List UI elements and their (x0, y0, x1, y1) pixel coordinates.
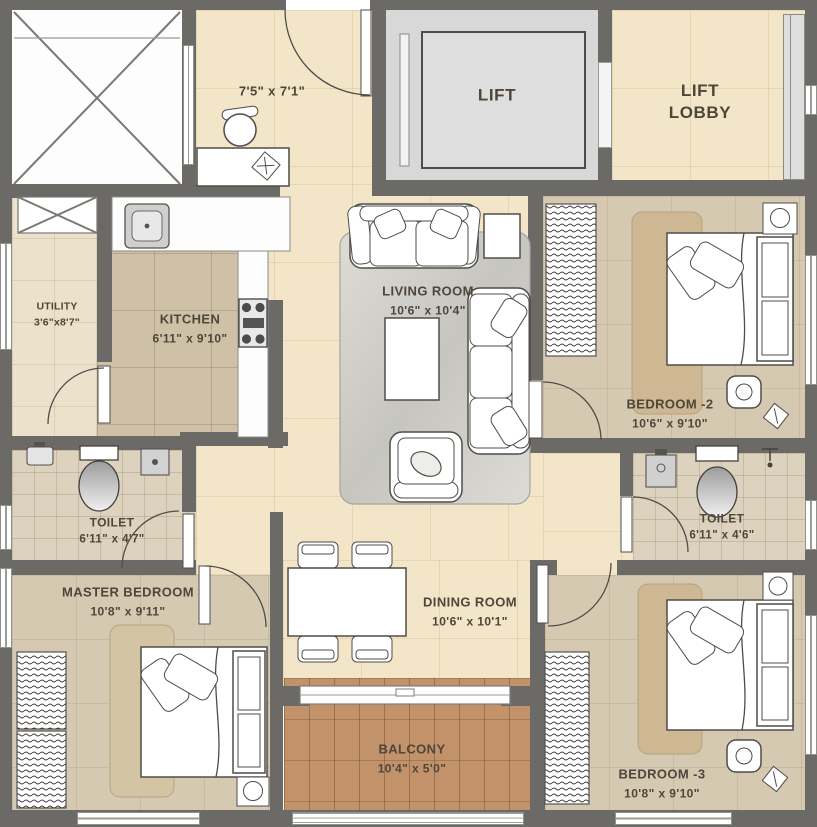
wc-toilet1-icon (79, 446, 119, 511)
wardrobe-bedroom3 (545, 652, 589, 804)
stool-bedroom2 (727, 376, 761, 408)
bed-bedroom2 (632, 212, 793, 414)
label-toilet2: TOILET 6'11" x 4'6" (689, 509, 754, 544)
floor-plan: 7'5" x 7'1" LIFT LIFT LOBBY UTILITY 3'6"… (0, 0, 817, 827)
nightstand-master (237, 777, 269, 806)
label-bedroom3: BEDROOM -3 10'8" x 9'10" (618, 764, 705, 802)
stove-icon (239, 299, 267, 347)
duct-cross-icon (18, 197, 97, 233)
nightstand-bedroom3 (763, 572, 793, 600)
dining-set (288, 542, 406, 662)
bed-bedroom3 (638, 584, 793, 754)
desk-chair-icon (221, 106, 258, 146)
armchair (390, 432, 462, 502)
washbasin-toilet2-icon (646, 449, 676, 487)
wardrobe-master (17, 652, 66, 808)
door-utility (48, 366, 110, 424)
label-lift: LIFT (478, 82, 516, 108)
bed-master (110, 625, 267, 797)
label-dining-room: DINING ROOM 10'6" x 10'1" (423, 592, 517, 630)
kitchen-sink-icon (125, 204, 169, 248)
wc-toilet2-icon (696, 446, 738, 517)
study-desk (197, 148, 289, 186)
dining-table (288, 568, 406, 636)
door-bedroom2 (529, 381, 601, 440)
balcony-sliding-door (300, 686, 510, 704)
label-kitchen: KITCHEN 6'11" x 9'10" (152, 309, 227, 347)
coffee-table (385, 318, 439, 400)
decor-bedroom2-icon (763, 403, 788, 428)
side-table (484, 214, 520, 258)
label-bedroom2: BEDROOM -2 10'6" x 9'10" (626, 394, 713, 432)
door-bedroom3 (537, 563, 611, 626)
wardrobe-bedroom2 (546, 204, 596, 356)
door-toilet2 (621, 497, 688, 552)
decor-bedroom3-icon (762, 766, 787, 791)
stool-bedroom3 (727, 740, 761, 772)
label-utility: UTILITY 3'6"x8'7" (34, 299, 80, 331)
label-balcony: BALCONY 10'4" x 5'0" (378, 739, 447, 777)
sofa-three-seat (468, 288, 530, 454)
faucet-toilet2-icon (762, 449, 778, 468)
nightstand-bedroom2 (763, 203, 797, 234)
label-living-room: LIVING ROOM 10'6" x 10'4" (382, 281, 474, 319)
shaft-cross-icon (14, 12, 180, 184)
sofa-loveseat (347, 204, 481, 268)
label-master-bedroom: MASTER BEDROOM 10'8" x 9'11" (62, 582, 194, 620)
door-master (199, 566, 266, 627)
washbasin-toilet1-icon (27, 442, 53, 465)
shower-toilet1-icon (141, 449, 169, 475)
label-foyer: 7'5" x 7'1" (239, 81, 305, 101)
label-lift-lobby: LIFT LOBBY (658, 80, 742, 124)
label-toilet1: TOILET 6'11" x 4'7" (79, 513, 144, 548)
